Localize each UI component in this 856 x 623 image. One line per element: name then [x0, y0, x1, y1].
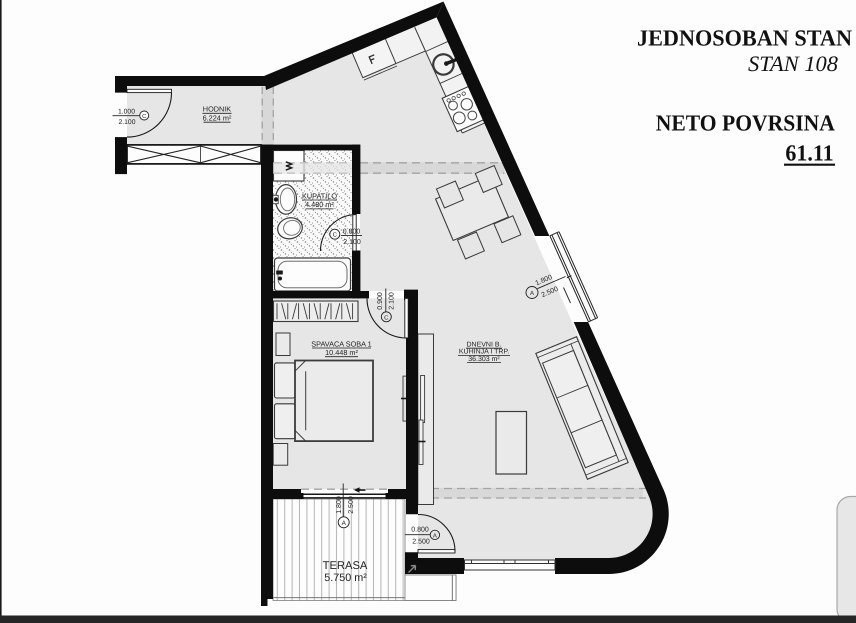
- svg-text:DNEVNI B.: DNEVNI B.: [466, 342, 501, 349]
- svg-text:2.500: 2.500: [412, 538, 430, 545]
- svg-text:HODNIK: HODNIK: [203, 105, 232, 114]
- svg-text:A: A: [433, 532, 437, 539]
- svg-text:STAN 108: STAN 108: [748, 51, 838, 76]
- svg-text:2.100: 2.100: [343, 239, 361, 246]
- svg-text:61.11: 61.11: [785, 141, 833, 166]
- svg-text:TERASA: TERASA: [323, 560, 368, 572]
- svg-text:C: C: [142, 113, 146, 120]
- svg-text:NETO POVRSINA: NETO POVRSINA: [656, 110, 835, 135]
- svg-text:A: A: [530, 290, 534, 297]
- svg-text:A: A: [342, 520, 347, 527]
- svg-text:SPAVACA SOBA 1: SPAVACA SOBA 1: [311, 339, 371, 348]
- svg-text:0.900: 0.900: [377, 292, 384, 310]
- svg-text:0.800: 0.800: [343, 228, 361, 235]
- svg-text:2.100: 2.100: [389, 292, 396, 310]
- svg-text:1.800: 1.800: [336, 496, 343, 514]
- svg-text:10.448 m²: 10.448 m²: [325, 348, 358, 357]
- svg-text:0.800: 0.800: [411, 527, 429, 534]
- svg-text:6.224 m²: 6.224 m²: [203, 114, 232, 123]
- svg-text:5.750 m²: 5.750 m²: [324, 572, 367, 584]
- svg-text:C: C: [333, 232, 338, 239]
- svg-text:KUHINJA I TRP.: KUHINJA I TRP.: [459, 349, 509, 356]
- svg-text:JEDNOSOBAN STAN: JEDNOSOBAN STAN: [637, 26, 852, 51]
- svg-text:2.500: 2.500: [348, 496, 355, 514]
- svg-text:2.100: 2.100: [118, 119, 135, 126]
- svg-text:KUPATILO: KUPATILO: [302, 191, 337, 200]
- svg-text:C: C: [384, 314, 389, 321]
- svg-text:36.303 m²: 36.303 m²: [468, 356, 500, 363]
- svg-text:1.000: 1.000: [118, 108, 135, 115]
- svg-text:4.480 m²: 4.480 m²: [305, 200, 334, 209]
